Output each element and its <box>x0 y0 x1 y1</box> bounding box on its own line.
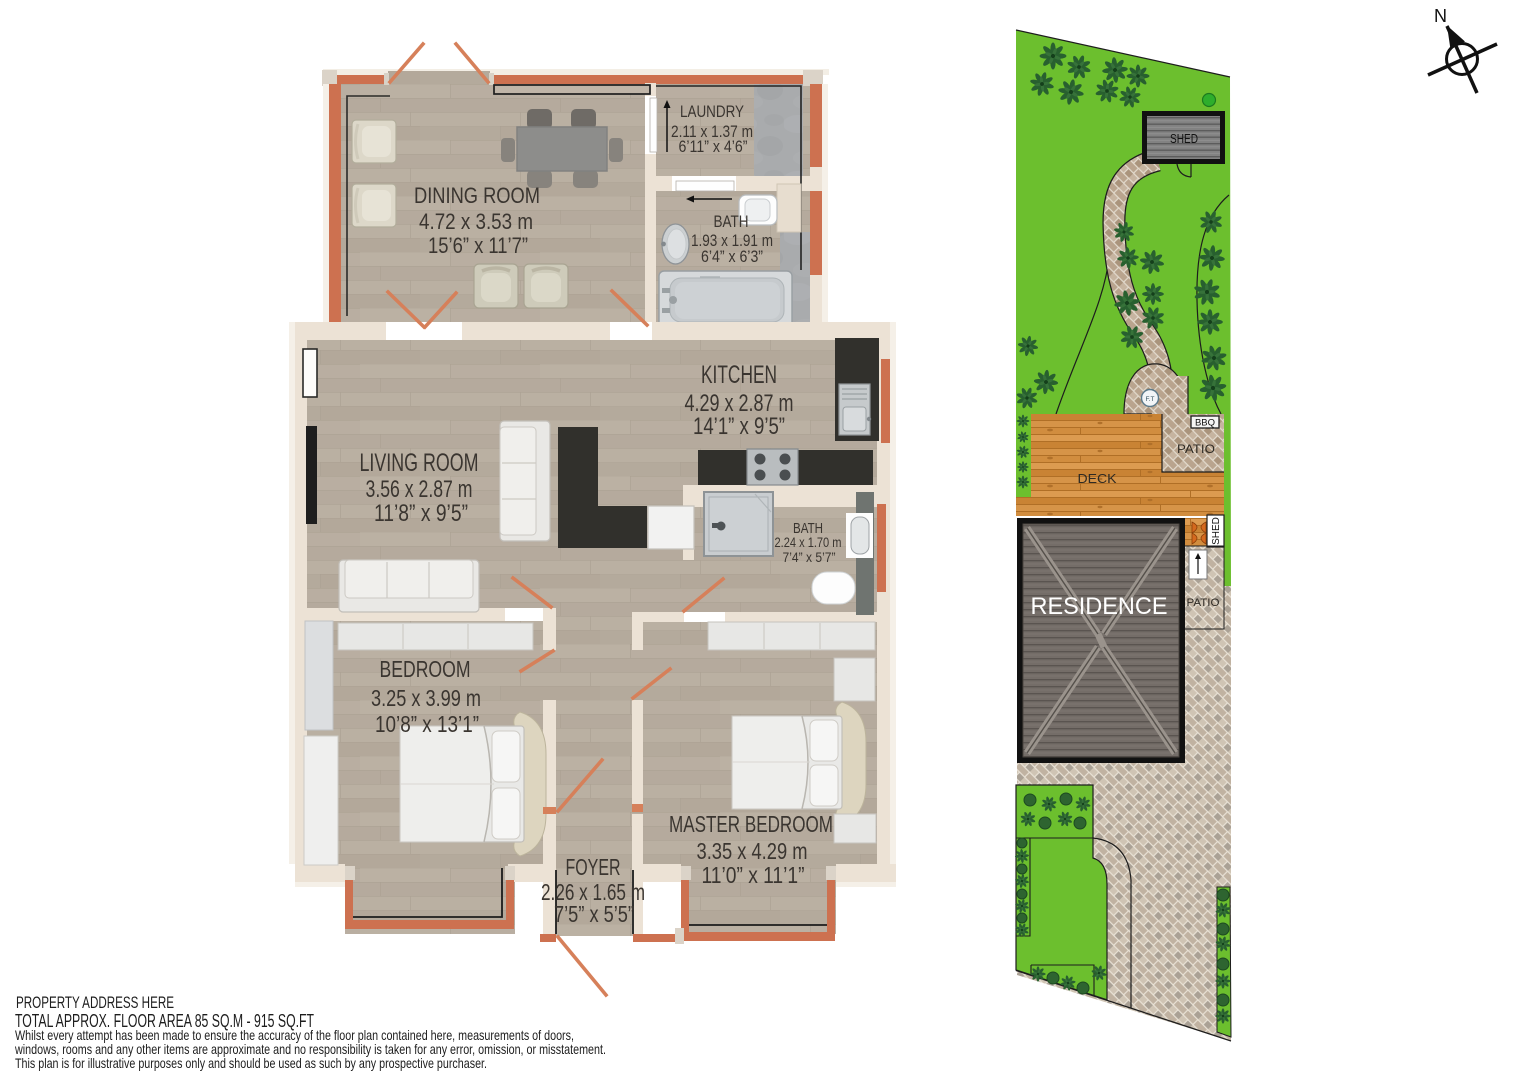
svg-text:LAUNDRY: LAUNDRY <box>680 102 744 121</box>
svg-text:SHED: SHED <box>1170 132 1198 146</box>
svg-text:This plan is for illustrative: This plan is for illustrative purposes o… <box>15 1055 487 1071</box>
svg-text:FOYER: FOYER <box>566 854 621 880</box>
svg-text:3.56 x 2.87 m: 3.56 x 2.87 m <box>366 476 473 503</box>
svg-text:DECK: DECK <box>1078 471 1117 486</box>
svg-text:6’4” x 6’3”: 6’4” x 6’3” <box>701 247 763 266</box>
svg-text:PATIO: PATIO <box>1187 597 1220 609</box>
svg-text:DINING ROOM: DINING ROOM <box>414 183 540 208</box>
svg-text:15’6” x 11’7”: 15’6” x 11’7” <box>428 233 528 258</box>
svg-text:F.T: F.T <box>1145 396 1154 403</box>
svg-text:10’8” x 13’1”: 10’8” x 13’1” <box>375 711 479 737</box>
svg-text:2.24 x 1.70 m: 2.24 x 1.70 m <box>775 535 842 550</box>
svg-text:MASTER BEDROOM: MASTER BEDROOM <box>669 811 833 837</box>
svg-text:14’1” x 9’5”: 14’1” x 9’5” <box>693 413 785 440</box>
svg-text:4.72 x 3.53 m: 4.72 x 3.53 m <box>419 209 533 234</box>
svg-text:11’8” x 9’5”: 11’8” x 9’5” <box>374 500 468 527</box>
svg-text:PATIO: PATIO <box>1177 442 1215 456</box>
svg-text:LIVING ROOM: LIVING ROOM <box>360 449 479 477</box>
svg-text:3.35 x 4.29 m: 3.35 x 4.29 m <box>697 838 808 864</box>
svg-text:RESIDENCE: RESIDENCE <box>1031 593 1168 620</box>
svg-text:SHED: SHED <box>1211 517 1222 545</box>
svg-text:7’5” x 5’5”: 7’5” x 5’5” <box>554 901 634 927</box>
svg-text:N: N <box>1434 6 1447 26</box>
svg-text:7’4” x 5’7”: 7’4” x 5’7” <box>783 550 836 565</box>
svg-text:BEDROOM: BEDROOM <box>380 656 471 682</box>
svg-text:BATH: BATH <box>714 212 749 231</box>
svg-text:11’0” x 11’1”: 11’0” x 11’1” <box>702 862 805 888</box>
svg-text:3.25 x 3.99 m: 3.25 x 3.99 m <box>371 685 481 711</box>
svg-text:BBQ: BBQ <box>1195 418 1215 429</box>
svg-text:6’11” x 4’6”: 6’11” x 4’6” <box>679 137 748 156</box>
svg-text:KITCHEN: KITCHEN <box>701 361 777 389</box>
